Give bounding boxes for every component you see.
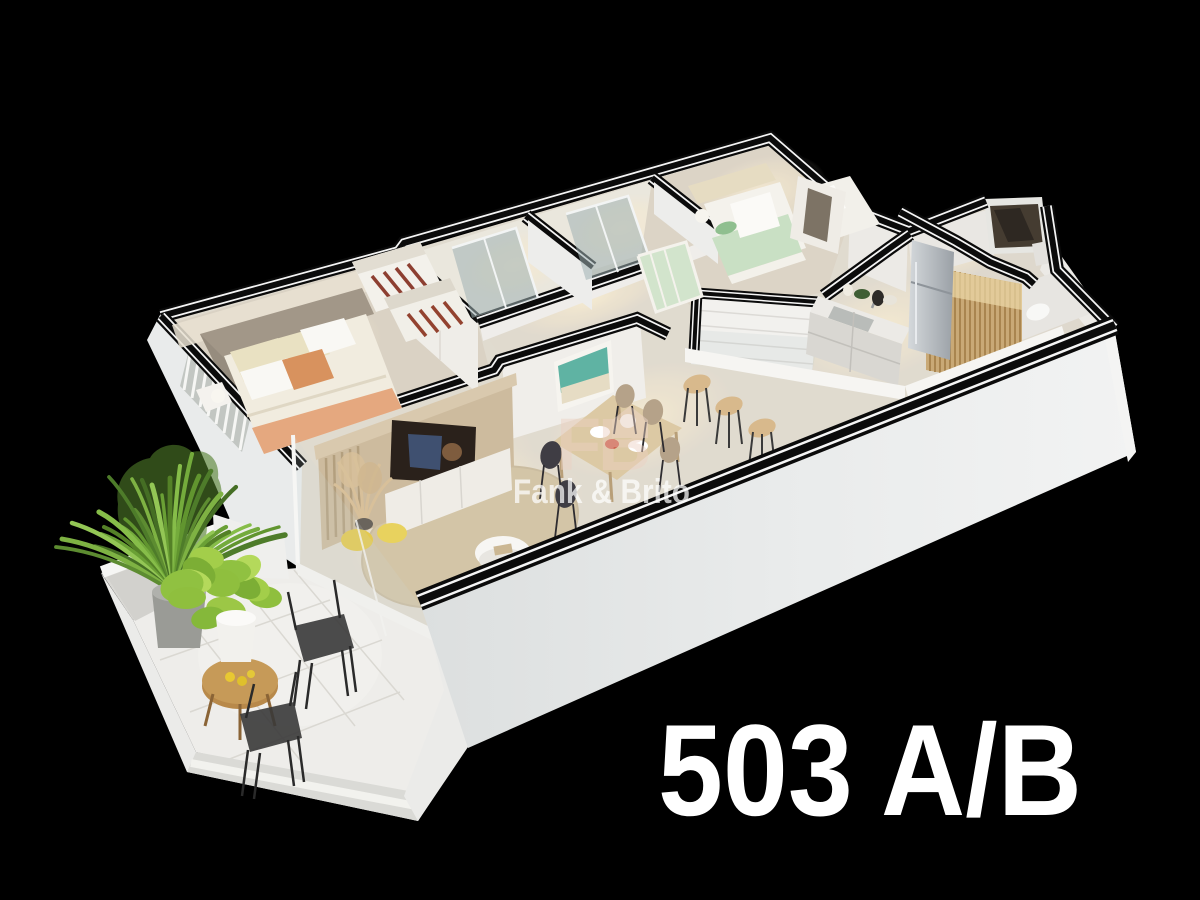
svg-text:503 A/B: 503 A/B xyxy=(658,697,1082,843)
svg-text:Fank & Brito: Fank & Brito xyxy=(513,473,690,511)
